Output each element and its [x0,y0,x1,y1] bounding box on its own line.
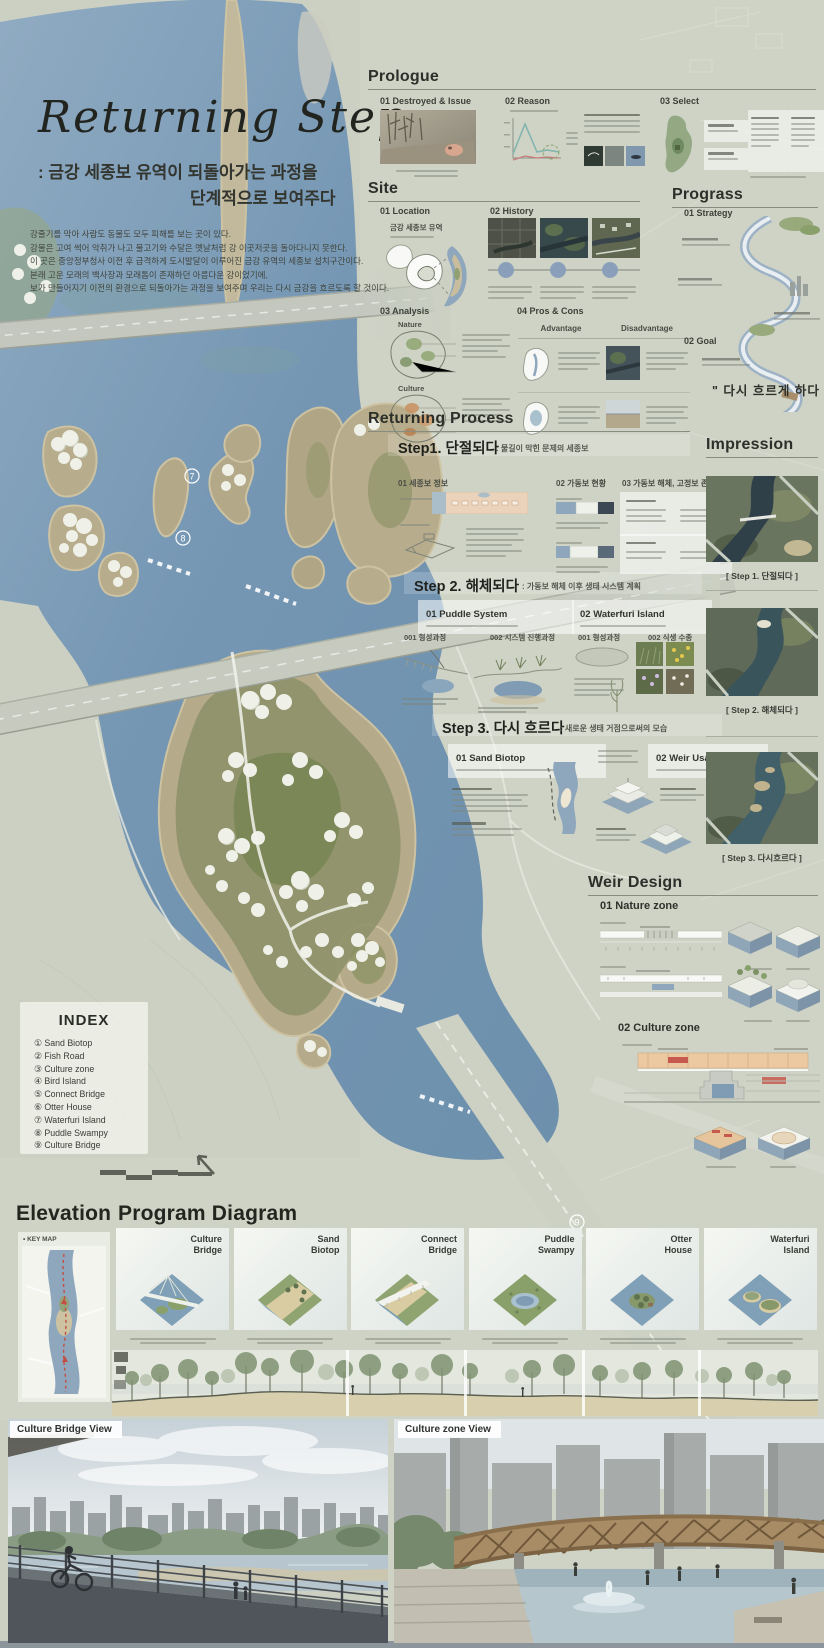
index-box: INDEX ① Sand Biotop ② Fish Road ③ Cultur… [20,1002,148,1154]
impression-caption-1: [ Step 1. 단절되다 ] [706,570,818,582]
site-item1-label: 01 Location [380,206,430,216]
adv-notes-1 [558,348,600,374]
culture-bridge-view-render [8,1419,388,1643]
step2-box2: 02 Waterfuri Island [572,600,712,634]
waterfuri-island-diagram [728,1274,792,1326]
index-item: ⑤ Connect Bridge [34,1088,148,1101]
program-card-puddle-swampy: Puddle Swampy [469,1228,582,1330]
prologue-header: Prologue [368,68,816,90]
keymap-label: • KEY MAP [23,1236,110,1243]
cz-iso2-caption [770,1162,796,1171]
island-formation-oval [574,646,630,668]
intro-line: 본래 고운 모래의 백사장과 모래톱이 존재하던 아름다운 강이었기에, [30,269,389,283]
step3-iso2-notes [596,824,636,845]
step1-iso-notes [466,524,524,561]
poster-subtitle-line2: 단계적으로 보여주다 [190,184,335,209]
prologue-item3-label: 03 Select [660,96,699,106]
step3-desc: : 새로운 생태 거점으로써의 모습 [560,723,667,734]
step2-box1-title: 01 Puddle System [426,609,507,620]
history-photo-3 [592,218,640,258]
history-caption-3 [592,282,636,302]
index-item: ③ Culture zone [34,1063,148,1076]
history-photo-2 [540,218,588,258]
weir-status-bar1 [556,502,614,514]
nature-zone-label: 01 Nature zone [600,900,678,912]
korea-map [656,112,700,176]
otter-house-diagram [610,1274,674,1326]
step1-desc: : 물길이 막힌 문제의 세종보 [496,443,589,454]
elevation-section-strip [112,1350,818,1416]
card-label: Otter House [664,1234,692,1255]
poster-title: Returning Step [38,92,407,143]
step2-box1: 01 Puddle System [418,600,574,634]
site-item4-label: 04 Pros & Cons [517,306,584,316]
intro-line: 이 곳은 중앙정부청사 이전 후 급격하게 도시발달이 이루어진 금강 유역의 … [30,255,389,269]
goal-quote: " 다시 흐르게 하다 " [712,380,824,399]
index-item: ⑦ Waterfuri Island [34,1114,148,1127]
proscons-divider [518,338,690,339]
connect-bridge-diagram [375,1274,439,1326]
step2-item-3: 001 형성과정 [578,632,620,643]
map-marker-9: 9 [574,1218,579,1228]
index-list: ① Sand Biotop ② Fish Road ③ Culture zone… [34,1037,148,1152]
select-caption [750,172,806,181]
culture-zone-view-render [394,1419,824,1643]
adv-map-1 [520,346,552,384]
nz-iso4-caption [786,1016,810,1025]
step2-desc: : 가동보 해체 이후 생태 시스템 계획 [522,581,641,592]
step1-bar1-notes [556,518,608,533]
step1-bar2-notes [556,562,608,577]
weir-usability-iso-1 [602,778,654,814]
culture-zone-label: 02 Culture zone [618,1022,700,1034]
advantage-header: Advantage [520,324,602,333]
step2-box2-title: 02 Waterfuri Island [580,609,665,620]
step1-col1-label: 01 세종보 정보 [398,478,448,489]
analysis-nature-map [382,328,458,382]
step3-iso1-notes [660,784,704,805]
program-card-culture-bridge: Culture Bridge [116,1228,229,1330]
step3-box1-notes [598,746,638,766]
weir-iso-sketch [402,528,460,562]
culture-zone-view-label: Culture zone View [398,1421,501,1438]
card-label: Culture Bridge [191,1234,223,1255]
culture-iso-pair [694,1114,814,1160]
elevation-header: Elevation [16,1202,111,1226]
card-label: Puddle Swampy [538,1234,575,1255]
step3-box1-title: 01 Sand Biotop [456,753,525,764]
card-descriptions [116,1336,817,1346]
destroyed-photo [380,110,476,164]
dis-photo-1 [606,346,640,380]
puddle-swampy-diagram [493,1274,557,1326]
map-marker-7: 7 [189,472,194,482]
impression-photo-3 [706,752,818,844]
select-table2 [788,110,824,172]
index-item: ① Sand Biotop [34,1037,148,1050]
culture-bridge-view-label: Culture Bridge View [10,1421,122,1438]
poster-intro: 강줄기를 막아 사람도 동물도 모두 피해를 보는 곳이 있다. 강물은 고여 … [30,228,389,296]
process-header: Returning Process [368,410,690,432]
culture-section [624,1048,820,1110]
site-header: Site [368,180,640,202]
site-item3-label: 03 Analysis [380,306,429,316]
history-caption-1 [488,282,532,302]
culture-bridge-diagram [140,1274,204,1326]
step3-col1-notes [452,784,528,839]
puddle-formation-sketch [400,644,470,708]
step2-title: Step 2. 해체되다 [414,575,519,596]
intro-line: 강줄기를 막아 사람도 동물도 모두 피해를 보는 곳이 있다. [30,228,389,242]
history-photo-1 [488,218,536,258]
card-label: Connect Bridge [421,1234,457,1255]
reason-legend [566,128,578,148]
index-item: ⑥ Otter House [34,1101,148,1114]
reason-table [584,110,640,136]
sand-biotop-plan [540,762,584,834]
select-tag1 [704,120,748,142]
program-diagram-header: Program Diagram [118,1202,297,1226]
step3-title: Step 3. 다시 흐르다 [442,717,564,738]
step1-col3-label: 03 가동보 해체, 고정보 존치 [622,478,716,489]
impression-sep-2 [706,736,818,737]
nature-iso-pair-1 [728,910,820,962]
plant-photo-grid [636,642,694,699]
program-card-waterfuri-island: Waterfuri Island [704,1228,817,1330]
program-cards: Culture Bridge Sand Biotop Conne [116,1228,817,1330]
impression-photo-1 [706,476,818,562]
program-card-connect-bridge: Connect Bridge [351,1228,464,1330]
history-timeline [488,262,640,278]
step1-col2-label: 02 가동보 현황 [556,478,606,489]
impression-photo-2 [706,608,818,696]
nature-notes [462,330,510,361]
plant-sketch [604,676,630,714]
index-title: INDEX [20,1012,148,1029]
program-card-otter-house: Otter House [586,1228,699,1330]
index-item: ④ Bird Island [34,1075,148,1088]
poster-subtitle-line1: : 금강 세종보 유역이 되돌아가는 과정을 [38,158,318,183]
nature-section-2 [600,970,722,1000]
index-item: ② Fish Road [34,1050,148,1063]
select-tag2 [704,148,748,170]
weir-usability-iso-2 [640,818,692,854]
nature-iso-pair-2 [728,958,820,1014]
nature-section-1 [600,926,722,956]
step2-item-1: 001 형성과정 [404,632,446,643]
cz-iso1-caption [706,1162,736,1171]
keymap-drawing [22,1246,106,1398]
proscons-divider2 [518,392,690,393]
history-caption-2 [540,282,584,302]
reason-photos [584,146,646,171]
card-label: Sand Biotop [311,1234,340,1255]
site-item2-label: 02 History [490,206,534,216]
prologue-item2-label: 02 Reason [505,96,550,106]
intro-line: 보가 만들어지기 이전의 환경으로 되돌아가는 과정을 보여주며 우리는 다시 … [30,282,389,296]
intro-line: 강물은 고여 썩어 악취가 나고 물고기와 수달은 옛날처럼 강 이곳저곳을 돌… [30,242,389,256]
poster-board: 7 8 9 Returning Step : 금강 세종보 유역이 되돌아가는 … [0,0,824,1648]
impression-caption-3: [ Step 3. 다시흐르다 ] [706,852,818,864]
index-item: ⑧ Puddle Swampy [34,1127,148,1140]
prologue-item1-label: 01 Destroyed & Issue [380,96,471,106]
step1-title: Step1. 단절되다 [398,437,499,458]
impression-sep-1 [706,590,818,591]
impression-caption-2: [ Step 2. 해체되다 ] [706,704,818,716]
weir-plan-diagram [432,492,528,514]
destroyed-captions [396,166,466,181]
keymap-card: • KEY MAP [18,1232,110,1402]
goal-label: 02 Goal [684,336,717,346]
impression-header: Impression [706,436,818,458]
index-item: ⑨ Culture Bridge [34,1139,148,1152]
weir-design-header: Weir Design [588,874,818,896]
nz-iso3-caption [744,1016,772,1025]
reason-chart [504,110,564,168]
puddle-system-sketch [472,640,564,714]
step1-weir-caption [400,494,434,503]
progress-header: Prograss [672,186,818,208]
program-card-sand-biotop: Sand Biotop [234,1228,347,1330]
card-label: Waterfuri Island [770,1234,809,1255]
weir-status-bar2 [556,546,614,558]
sand-biotop-diagram [258,1274,322,1326]
map-marker-8: 8 [180,534,185,544]
select-table1 [748,110,788,172]
location-diagram [378,238,480,310]
